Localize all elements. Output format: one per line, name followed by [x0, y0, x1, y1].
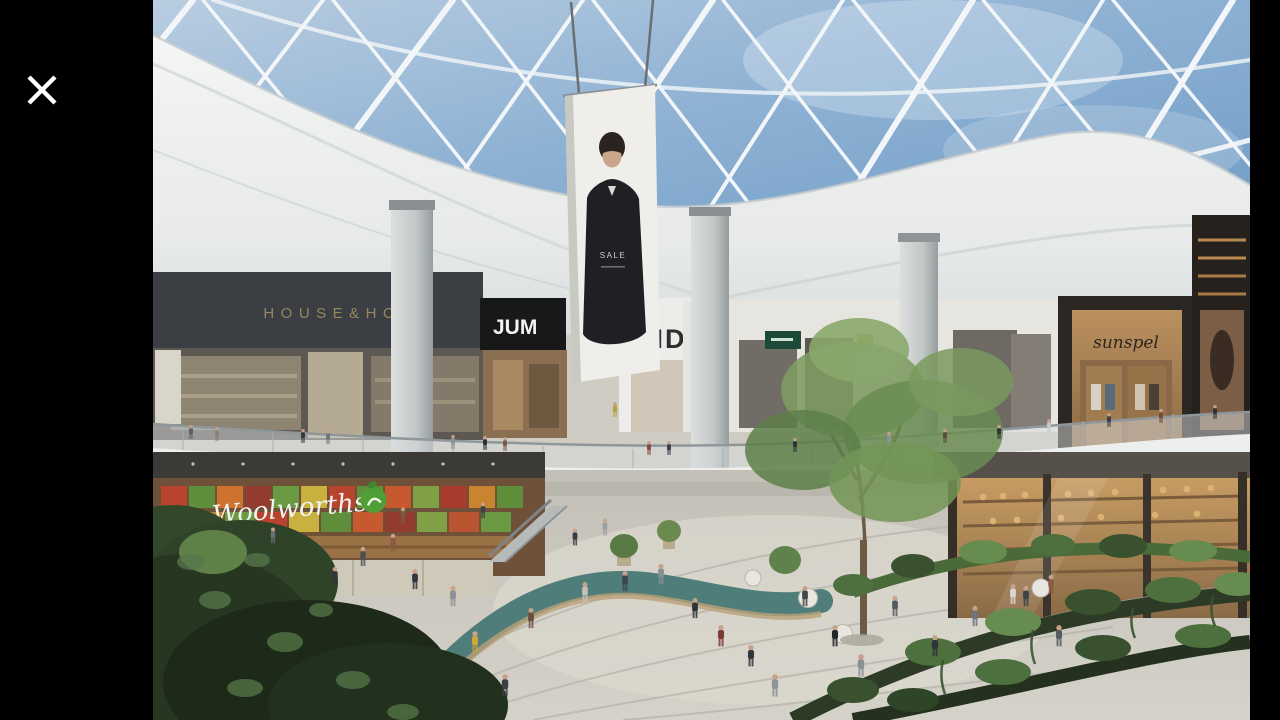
banner-sale-text: SALE — [600, 251, 626, 260]
close-button[interactable] — [22, 70, 62, 110]
close-icon — [23, 71, 61, 109]
mall-scene: HOUSE&HOME JUM — [153, 0, 1250, 720]
image-viewer: HOUSE&HOME JUM — [0, 0, 1280, 720]
store-house-and-home: HOUSE&HOME — [153, 272, 483, 440]
sunspel-sign: sunspel — [1093, 333, 1159, 353]
store-jump: JUM — [480, 298, 567, 438]
jump-sign: JUM — [493, 316, 537, 339]
mall-render-photo: HOUSE&HOME JUM — [153, 0, 1250, 720]
